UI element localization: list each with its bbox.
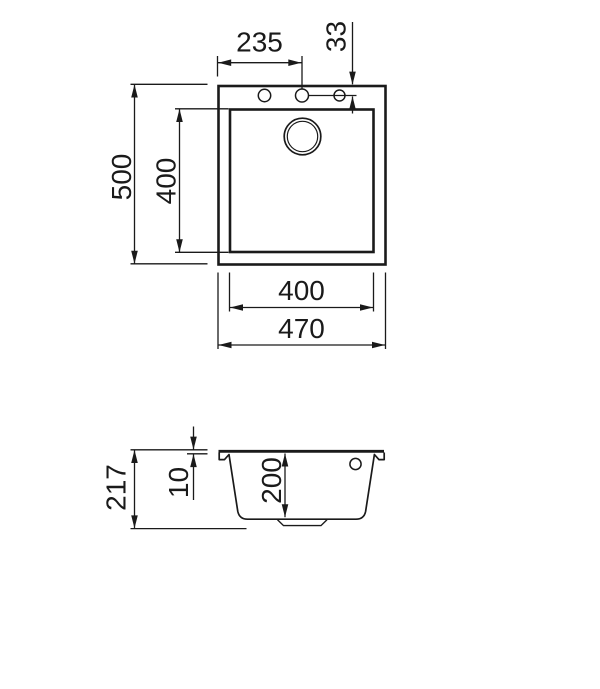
dim-label-470: 470 xyxy=(278,313,325,344)
overflow-hole xyxy=(350,458,361,469)
tap-hole-left xyxy=(258,89,270,101)
sink-outer-rect xyxy=(219,86,386,265)
top-view: 235 33 500 400 xyxy=(106,21,386,349)
drain-recess-profile xyxy=(278,520,328,526)
arrow-right-icon xyxy=(288,59,301,66)
drain-inner-circle xyxy=(287,121,317,151)
arrow-up-icon xyxy=(176,109,183,122)
arrow-up-icon xyxy=(131,450,138,463)
dim-label-217: 217 xyxy=(101,464,132,511)
arrow-left-icon xyxy=(230,304,243,311)
arrow-down-icon xyxy=(190,437,197,450)
arrow-down-icon xyxy=(349,72,356,85)
dim-label-235: 235 xyxy=(236,27,283,58)
arrow-down-icon xyxy=(282,504,289,517)
arrow-right-icon xyxy=(372,342,385,349)
dim-tap-center-from-left: 235 xyxy=(218,27,303,89)
dim-label-10: 10 xyxy=(163,467,194,498)
arrow-left-icon xyxy=(218,59,231,66)
dim-label-200: 200 xyxy=(256,457,287,504)
sink-technical-drawing: 235 33 500 400 xyxy=(0,0,600,689)
dim-label-33: 33 xyxy=(321,21,352,52)
dim-inner-width: 400 xyxy=(230,273,374,312)
dim-bowl-depth: 200 xyxy=(256,454,288,518)
dim-rim-thickness: 10 xyxy=(163,427,208,501)
dim-inner-depth: 400 xyxy=(151,109,229,253)
dim-label-400-left: 400 xyxy=(151,158,182,205)
arrow-up-icon xyxy=(131,85,138,98)
arrow-down-icon xyxy=(131,515,138,528)
arrow-down-icon xyxy=(131,251,138,264)
side-view: 200 217 10 xyxy=(101,427,385,529)
technical-drawing-page: 235 33 500 400 xyxy=(0,0,600,689)
dim-label-400-bottom: 400 xyxy=(278,275,325,306)
arrow-left-icon xyxy=(219,342,232,349)
arrow-down-icon xyxy=(176,239,183,252)
arrow-right-icon xyxy=(360,304,373,311)
dim-label-500: 500 xyxy=(106,154,137,201)
tap-hole-center xyxy=(296,89,309,102)
